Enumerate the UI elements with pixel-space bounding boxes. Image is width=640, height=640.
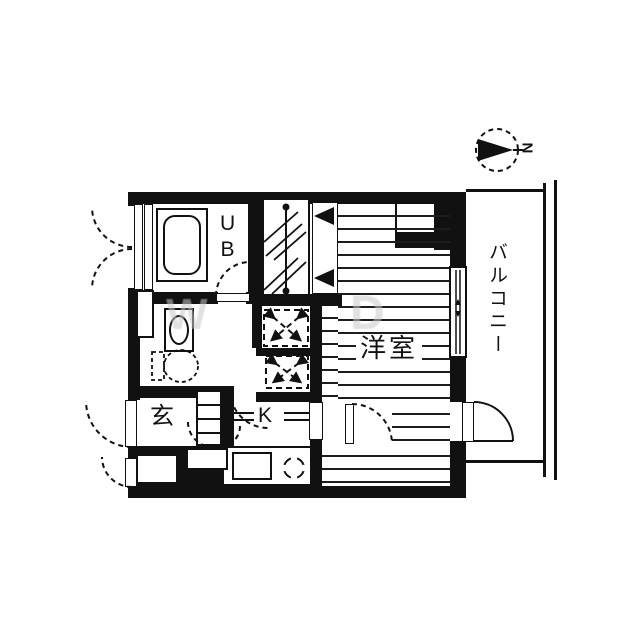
toilet-bowl: [164, 350, 198, 382]
shoe-cabinet: [196, 390, 222, 446]
wall-segment: [248, 192, 262, 304]
door-leaf: [125, 400, 137, 447]
door-swing-arc: [216, 262, 250, 296]
floor-lines: [322, 306, 338, 402]
folding-door-strip: [312, 202, 338, 294]
wall-segment: [450, 192, 466, 268]
wall-segment: [256, 348, 310, 356]
label-unit-bath: UB: [216, 212, 238, 264]
balcony-edge-line: [466, 189, 544, 192]
door-leaf: [216, 293, 250, 302]
floor-lines: [322, 444, 450, 486]
door-swing-arc: [92, 207, 132, 247]
slide-door-mark: [234, 419, 254, 421]
label-entrance: 玄: [150, 404, 174, 429]
meter-box: [136, 454, 178, 484]
door-leaf: [134, 204, 143, 290]
door-leaf: [345, 404, 354, 444]
wall-segment: [252, 294, 262, 348]
door-leaf: [125, 458, 137, 487]
wall-niche: [136, 290, 154, 338]
door-swing-arc: [92, 249, 132, 289]
label-kitchen: K: [258, 405, 272, 427]
door-leaf: [144, 204, 153, 290]
doorway-frame: [309, 402, 323, 440]
label-balcony: バルコニー: [486, 242, 506, 357]
wall-segment: [310, 294, 322, 404]
compass-icon: [476, 129, 523, 171]
balcony-rail-line: [554, 180, 557, 480]
wall-segment: [450, 441, 466, 498]
slide-door-mark: [284, 412, 310, 414]
floor-lines: [392, 402, 450, 444]
wall-segment: [256, 392, 310, 402]
toilet-tank: [152, 352, 164, 380]
kitchen-sink: [232, 452, 272, 480]
closet: [262, 198, 310, 296]
balcony-rail-line: [543, 183, 546, 477]
storage-box: [186, 448, 228, 470]
wall-segment: [128, 486, 466, 498]
watermark-glyph: D: [350, 286, 385, 341]
slide-door-mark: [234, 412, 254, 414]
door-leaf: [462, 402, 474, 442]
sliding-window: [449, 266, 467, 358]
balcony-door-arc: [474, 402, 513, 441]
wall-segment: [222, 386, 234, 446]
slide-door-mark: [284, 419, 310, 421]
bathtub-inner: [163, 215, 201, 275]
watermark-glyph: W: [166, 290, 208, 340]
floorplan-canvas: UB 玄 K 洋室 バルコニー N W D: [0, 0, 640, 640]
balcony-edge-line: [466, 460, 544, 463]
compass-north-label: N: [519, 142, 535, 153]
wall-segment: [450, 358, 466, 402]
door-swing-arc: [352, 404, 392, 444]
